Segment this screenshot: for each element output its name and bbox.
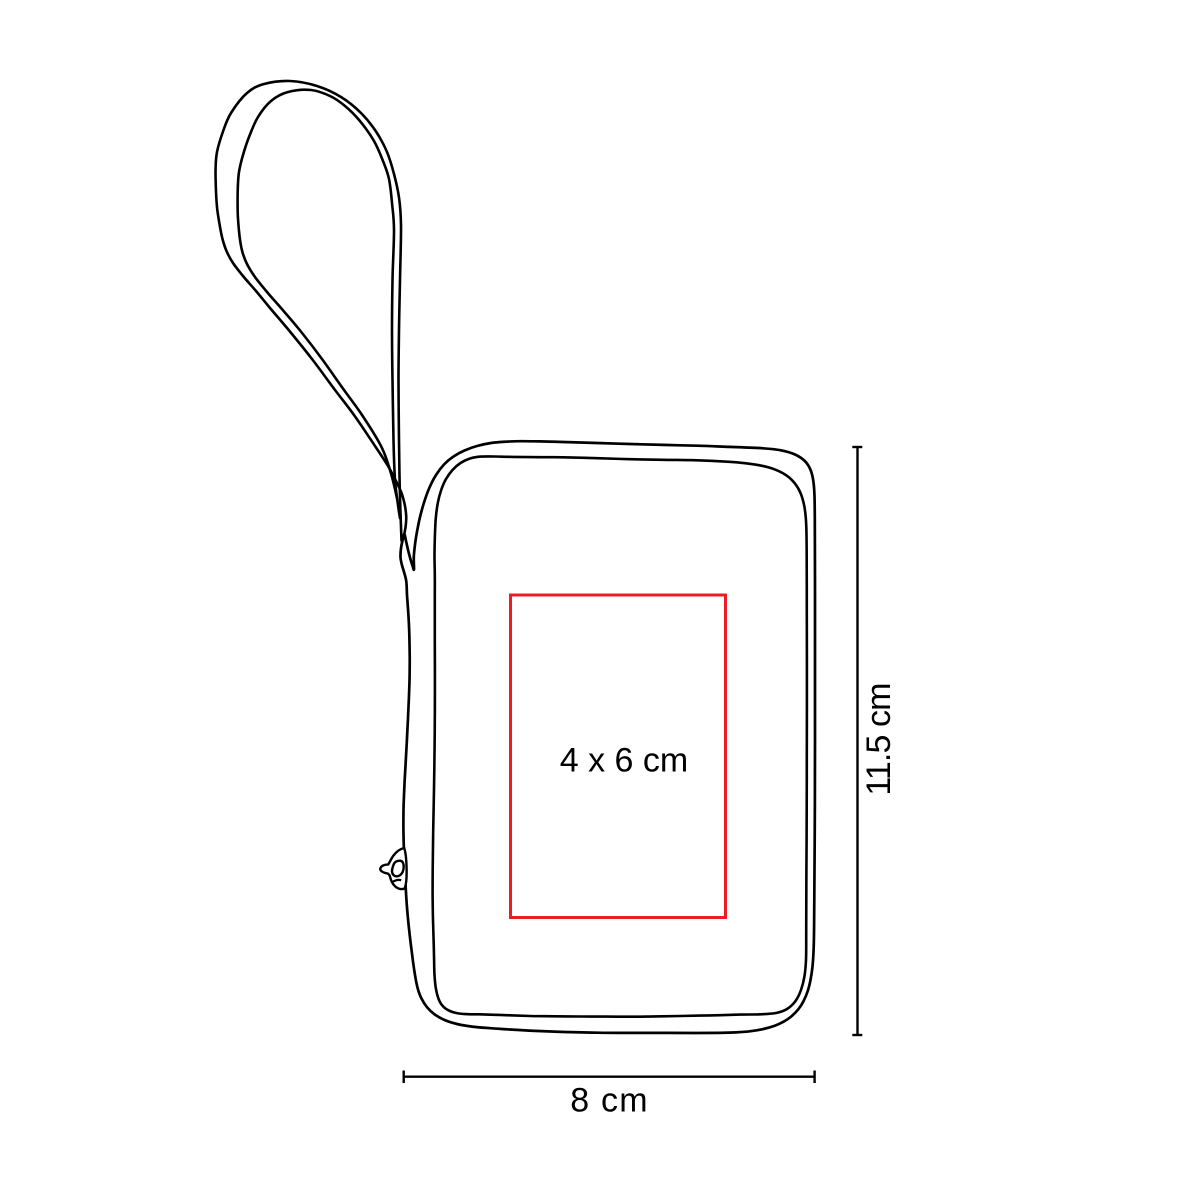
svg-text:11.5 cm: 11.5 cm (860, 683, 898, 795)
svg-text:4 x 6 cm: 4 x 6 cm (560, 741, 688, 779)
svg-text:8 cm: 8 cm (570, 1082, 648, 1120)
